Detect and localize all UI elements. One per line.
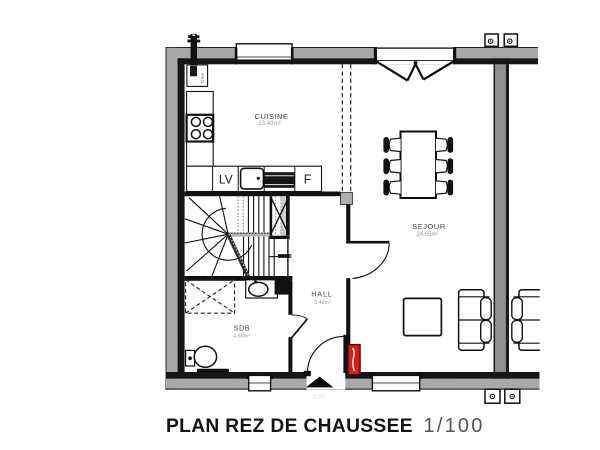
svg-text:13.48m²: 13.48m² <box>258 120 281 127</box>
svg-text:4.88m²: 4.88m² <box>233 333 250 339</box>
svg-text:SEJOUR: SEJOUR <box>412 222 446 231</box>
svg-text:24.55m²: 24.55m² <box>416 232 438 238</box>
svg-text:1.26: 1.26 <box>313 395 325 401</box>
svg-text:PLAN REZ DE CHAUSSEE: PLAN REZ DE CHAUSSEE <box>166 416 413 437</box>
svg-text:HALL: HALL <box>311 291 333 298</box>
svg-text:SDB: SDB <box>234 326 250 333</box>
svg-text:5.46m²: 5.46m² <box>314 300 330 306</box>
svg-text:1/100: 1/100 <box>424 415 485 437</box>
svg-text:Chaud.: Chaud. <box>201 72 205 83</box>
svg-text:F: F <box>304 172 312 186</box>
svg-text:LV: LV <box>219 172 233 186</box>
